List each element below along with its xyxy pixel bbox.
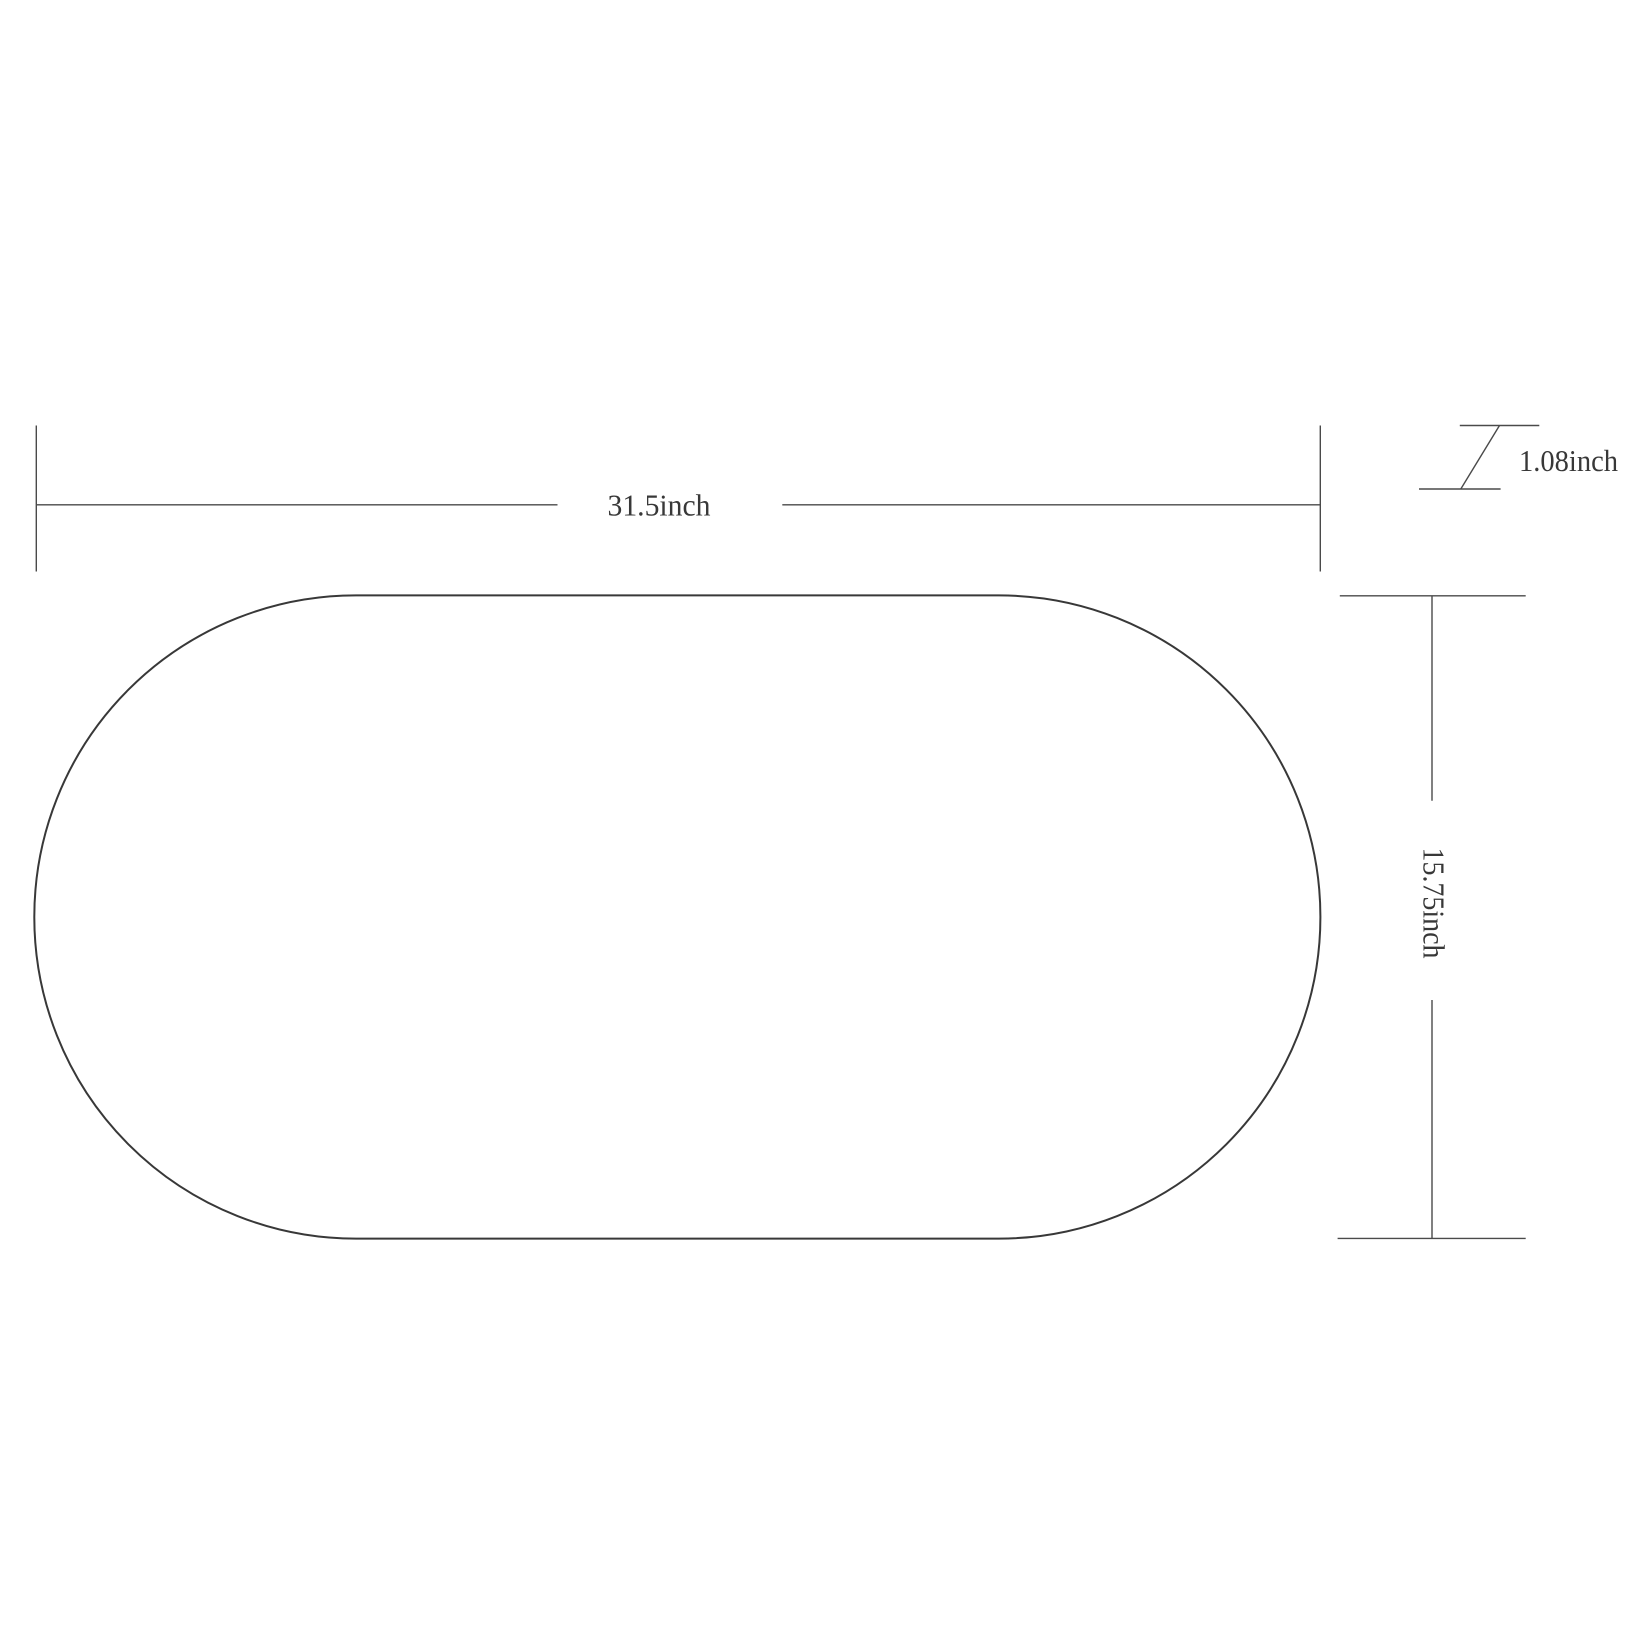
- svg-text:31.5inch: 31.5inch: [608, 488, 711, 523]
- svg-text:15.75inch: 15.75inch: [1417, 848, 1452, 959]
- svg-text:1.08inch: 1.08inch: [1519, 443, 1618, 478]
